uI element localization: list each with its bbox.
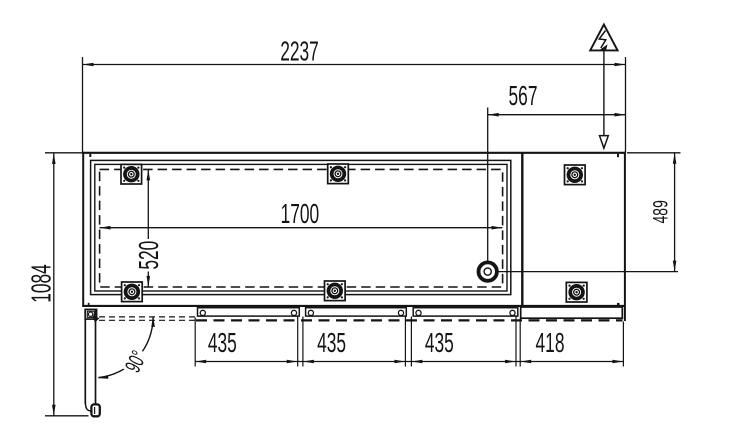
svg-text:2237: 2237 [280, 35, 319, 66]
svg-text:435: 435 [425, 327, 454, 358]
svg-text:435: 435 [317, 327, 346, 358]
svg-text:418: 418 [536, 327, 565, 358]
svg-text:435: 435 [208, 327, 237, 358]
svg-text:1084: 1084 [25, 264, 56, 303]
svg-text:567: 567 [509, 80, 538, 111]
svg-text:1700: 1700 [281, 198, 320, 229]
svg-text:489: 489 [648, 200, 672, 223]
svg-text:520: 520 [133, 241, 164, 270]
